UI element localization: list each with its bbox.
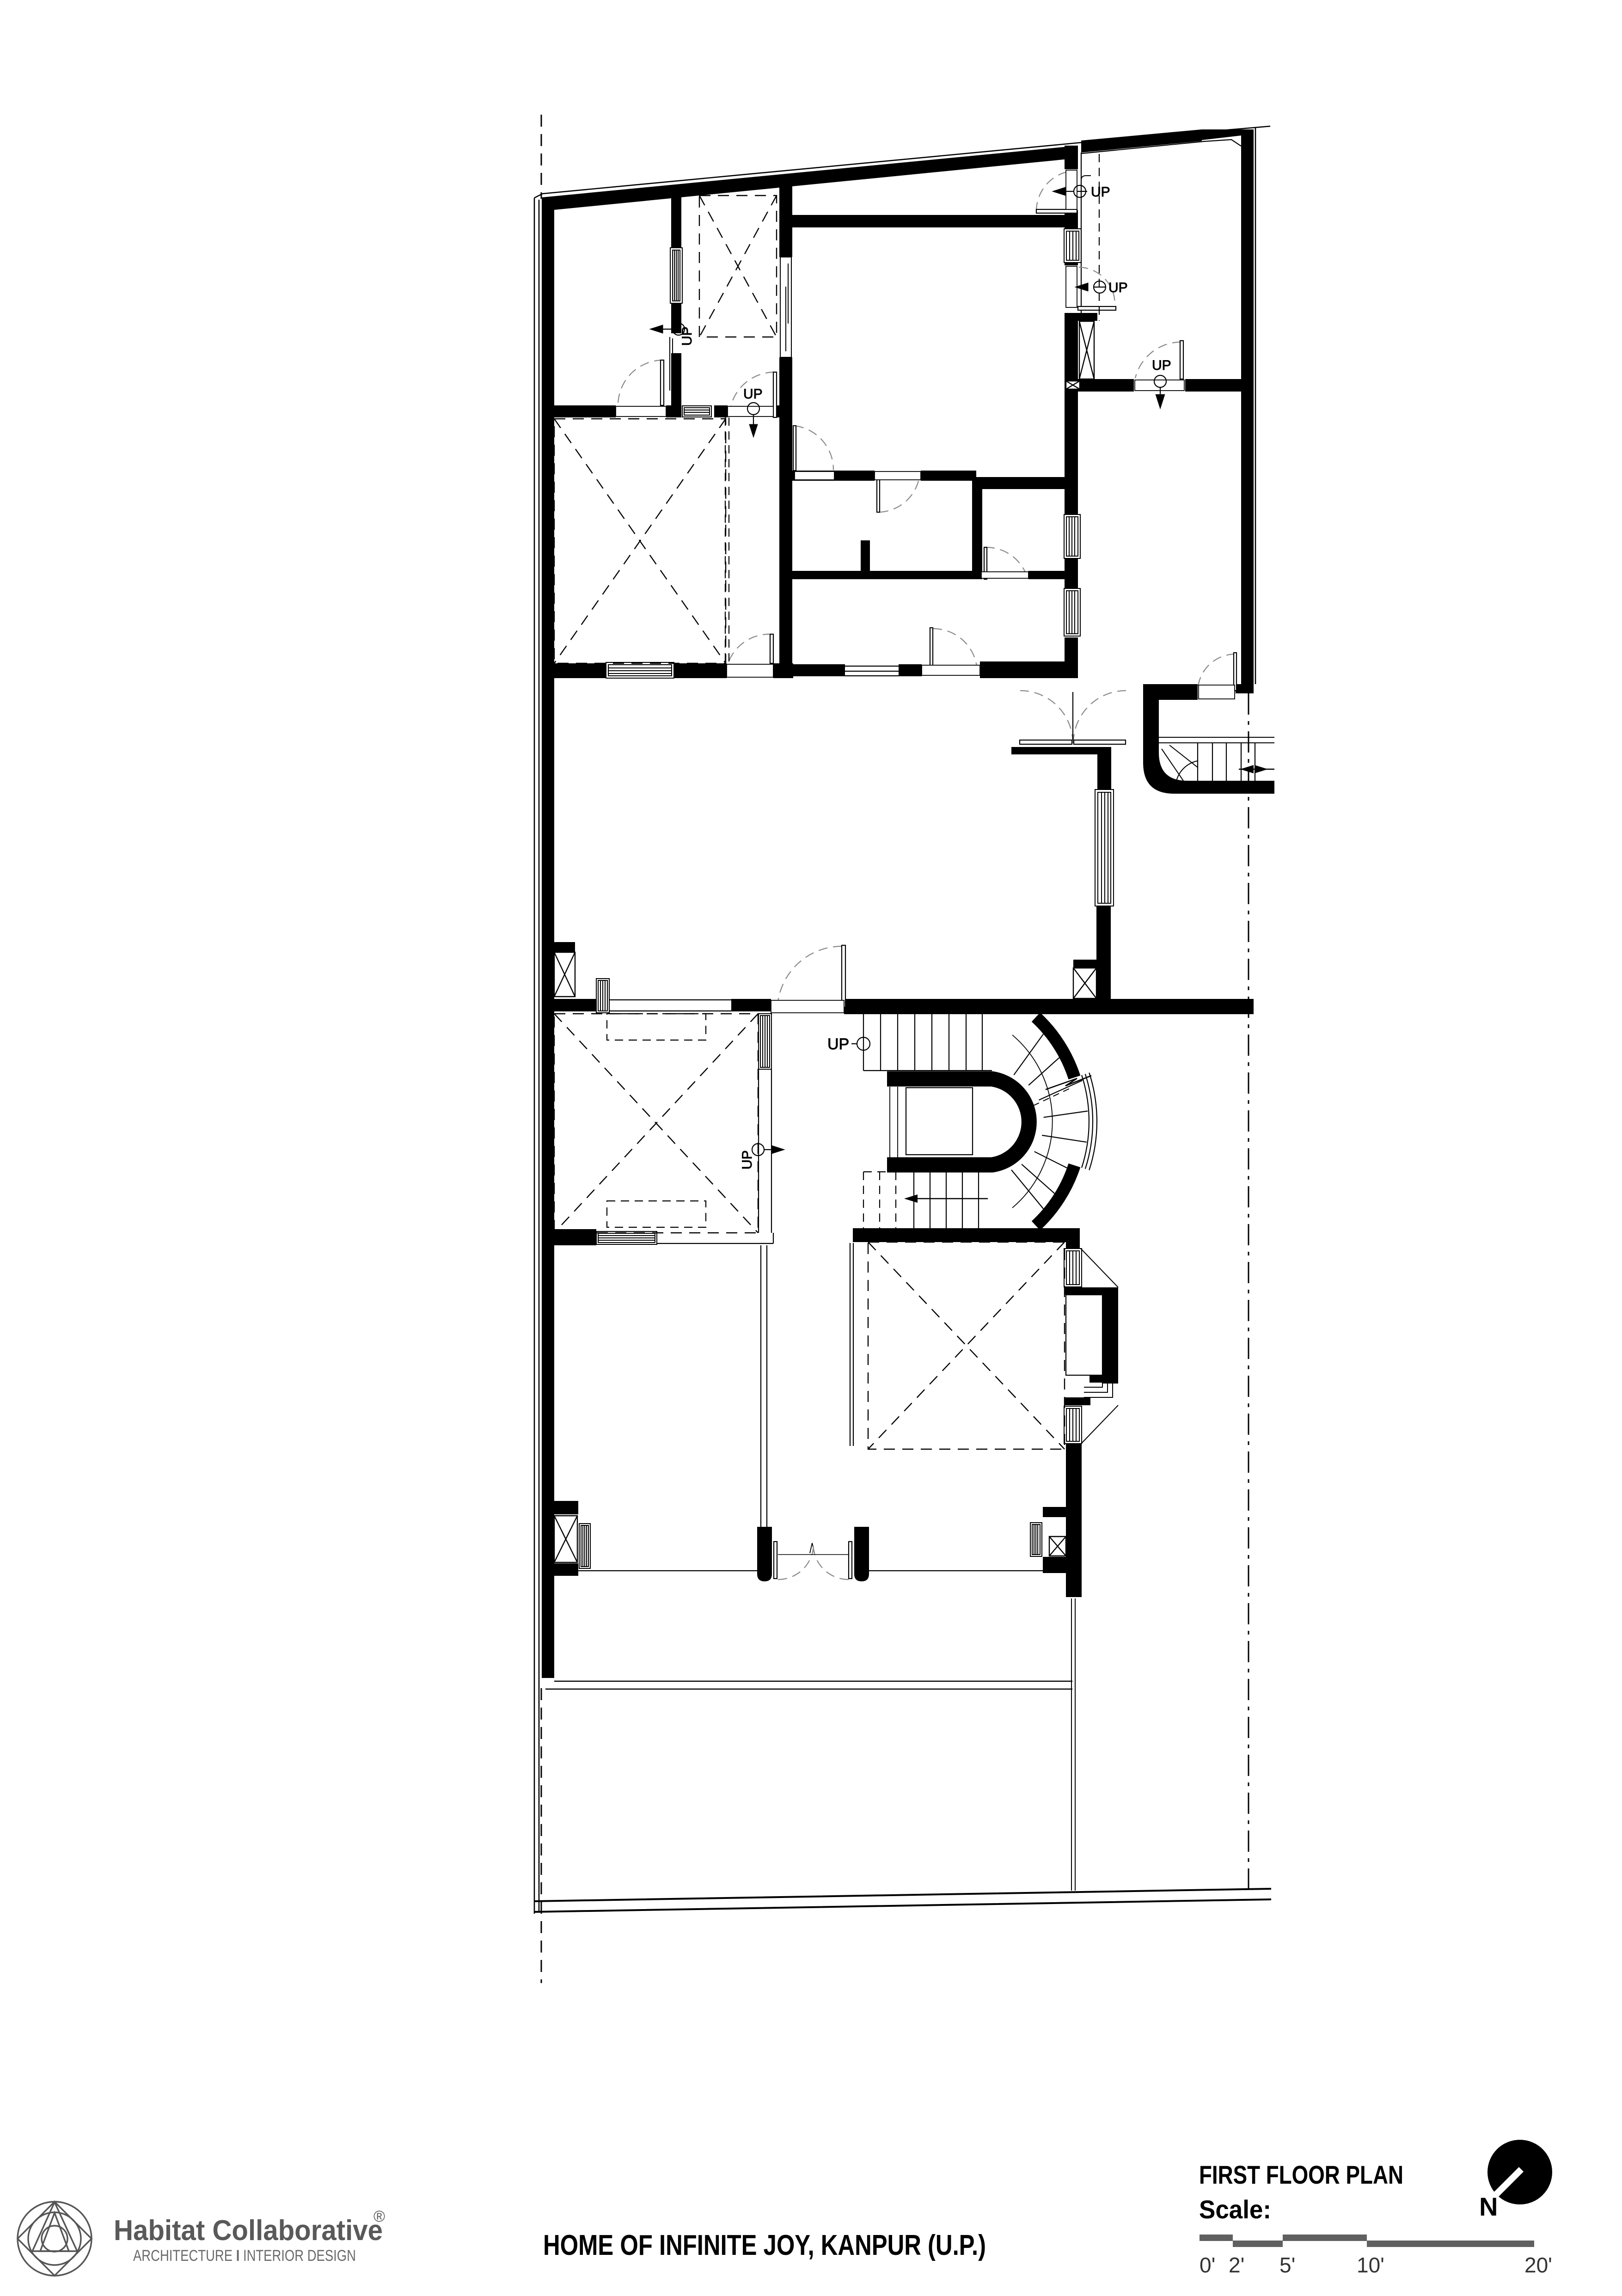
svg-text:N: N	[1479, 2192, 1498, 2221]
svg-text:2': 2'	[1229, 2253, 1244, 2277]
svg-text:ARCHITECTURE I INTERIOR DESIGN: ARCHITECTURE I INTERIOR DESIGN	[133, 2247, 356, 2265]
svg-text:UP: UP	[1152, 358, 1171, 373]
svg-text:UP: UP	[679, 326, 695, 346]
svg-text:Habitat Collaborative: Habitat Collaborative	[114, 2215, 383, 2247]
svg-text:0': 0'	[1200, 2253, 1215, 2277]
svg-text:UP: UP	[1108, 280, 1128, 295]
svg-text:UP: UP	[827, 1035, 849, 1053]
svg-text:Scale:: Scale:	[1199, 2195, 1271, 2224]
svg-text:5': 5'	[1279, 2253, 1295, 2277]
svg-text:®: ®	[373, 2208, 385, 2225]
svg-text:UP: UP	[743, 386, 763, 402]
svg-text:10': 10'	[1357, 2253, 1384, 2277]
svg-text:UP: UP	[740, 1150, 755, 1169]
svg-text:HOME OF INFINITE JOY, KANPUR (: HOME OF INFINITE JOY, KANPUR (U.P.)	[543, 2229, 986, 2261]
svg-text:UP: UP	[1091, 184, 1110, 200]
svg-text:20': 20'	[1524, 2253, 1552, 2277]
svg-text:FIRST FLOOR PLAN: FIRST FLOOR PLAN	[1199, 2160, 1403, 2189]
